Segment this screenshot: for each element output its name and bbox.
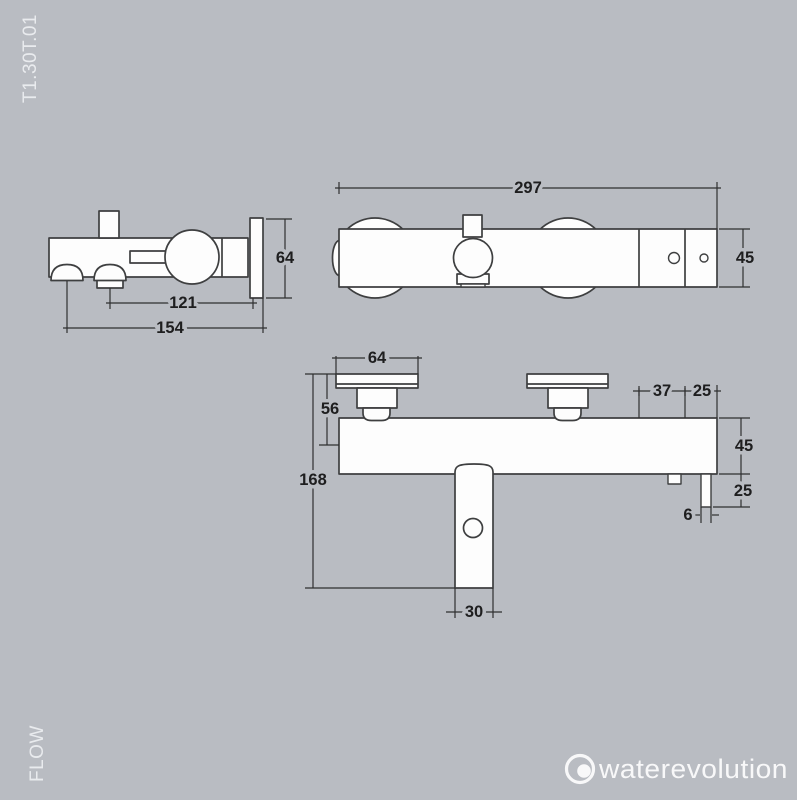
side-view: 64 121 154 bbox=[49, 211, 295, 337]
dim-label-45-top: 45 bbox=[736, 249, 754, 267]
dim-front-screw-offsets: 37 25 bbox=[633, 382, 721, 418]
right-union-block bbox=[548, 388, 588, 408]
brand-logo: waterevolution bbox=[567, 754, 789, 784]
dim-label-30: 30 bbox=[465, 603, 483, 621]
diverter-knob-side bbox=[99, 211, 119, 238]
handle-ball-top bbox=[454, 239, 493, 278]
dim-front-spout-width: 30 bbox=[446, 588, 502, 621]
left-union-block bbox=[357, 388, 397, 408]
logo-droplet bbox=[577, 764, 591, 778]
right-wall-mount bbox=[527, 374, 608, 421]
dim-front-outlet-width: 6 bbox=[683, 506, 719, 524]
handle-bracket-base bbox=[461, 284, 485, 287]
handle-lever bbox=[130, 251, 169, 263]
dim-label-121: 121 bbox=[169, 294, 197, 312]
screw-hole bbox=[669, 253, 680, 264]
front-view: 64 56 168 30 37 bbox=[299, 349, 753, 621]
left-wall-mount bbox=[336, 374, 418, 421]
underside-tab bbox=[668, 474, 681, 484]
spout-outlet-dome bbox=[51, 265, 83, 281]
dim-label-25-top: 25 bbox=[693, 382, 711, 400]
dim-top-body-depth: 45 bbox=[719, 229, 754, 287]
dim-label-64-front: 64 bbox=[368, 349, 387, 367]
dim-label-297: 297 bbox=[514, 179, 542, 197]
outlet-pipe bbox=[701, 474, 711, 507]
right-flange bbox=[527, 374, 608, 388]
dim-label-25-right: 25 bbox=[734, 482, 752, 500]
handle-ball-side bbox=[165, 230, 219, 284]
dim-label-37: 37 bbox=[653, 382, 671, 400]
drawing-sheet: 64 121 154 bbox=[0, 0, 797, 800]
left-union-nipple bbox=[363, 408, 390, 421]
dim-label-56: 56 bbox=[321, 400, 339, 418]
shower-outlet-dome bbox=[94, 265, 126, 281]
screw-hole bbox=[700, 254, 708, 262]
dim-side-shower-to-wall: 121 bbox=[106, 288, 257, 312]
dim-side-spout-to-wall: 154 bbox=[63, 281, 267, 337]
dim-label-6: 6 bbox=[683, 506, 692, 524]
left-flange bbox=[336, 374, 418, 388]
dim-label-168: 168 bbox=[299, 471, 327, 489]
spout-button bbox=[464, 519, 483, 538]
wall-plate bbox=[250, 218, 263, 298]
technical-drawing: 64 121 154 bbox=[0, 0, 797, 800]
top-view: 297 45 bbox=[333, 179, 755, 298]
mixer-body-top bbox=[339, 229, 717, 287]
logo-wordmark: waterevolution bbox=[598, 754, 788, 784]
flow-label: FLOW bbox=[27, 725, 48, 782]
dim-label-45-front: 45 bbox=[735, 437, 753, 455]
dim-label-154: 154 bbox=[156, 319, 184, 337]
product-code-label: T1.30T.01 bbox=[20, 14, 41, 103]
right-union-nipple bbox=[554, 408, 581, 421]
dim-side-plate-height: 64 bbox=[266, 219, 295, 298]
mixer-body-front bbox=[339, 418, 717, 474]
dim-front-flange-width: 64 bbox=[332, 349, 422, 374]
diverter-knob-top bbox=[463, 215, 482, 237]
dim-front-body-height: 45 bbox=[719, 418, 753, 474]
dim-front-outlet-drop: 25 bbox=[713, 474, 752, 507]
dim-label-64-side: 64 bbox=[276, 249, 295, 267]
waterevolution-logo-icon bbox=[567, 756, 594, 783]
